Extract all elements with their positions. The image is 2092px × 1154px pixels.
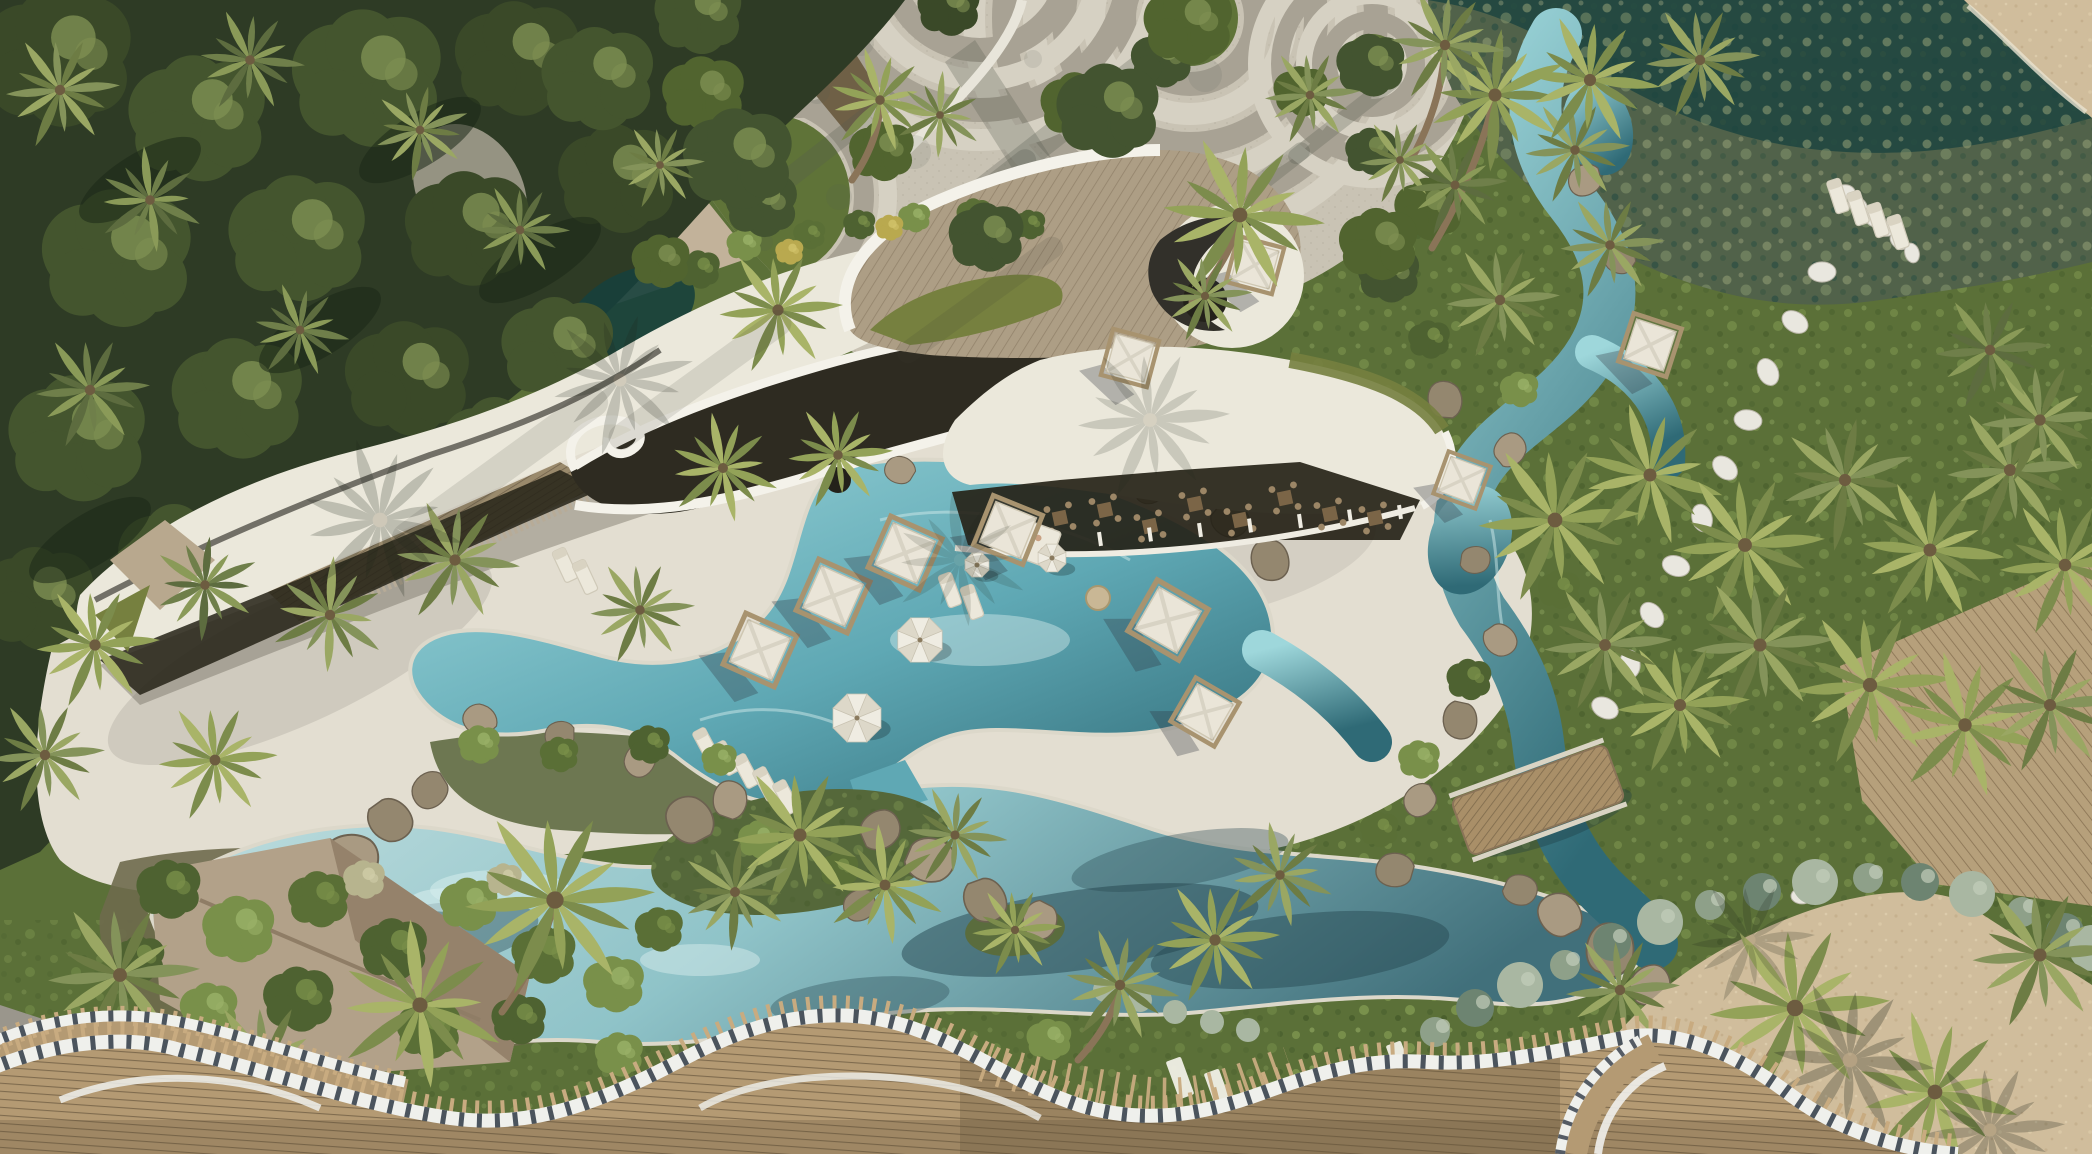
hedge-bush [1637,899,1683,945]
hedge-bush [1949,871,1995,917]
umbrella-pole [918,638,923,643]
resort-aerial-screenshot: Aerial rendering of a tropical resort wi… [0,0,2092,1154]
umbrella-pole [1050,556,1055,561]
hedge-highlight [1476,995,1490,1009]
hedge-bush [1792,859,1838,905]
hedge-highlight [1763,879,1777,893]
pouf [1086,586,1110,610]
hedge-bush [1456,989,1494,1027]
flowering-hedge [1200,1010,1224,1034]
hedge-highlight [1566,952,1580,966]
stepping-stone [1808,262,1836,282]
hedge-highlight [1613,929,1627,943]
shadow-dapple [1024,50,1042,68]
hedge-highlight [1973,881,1987,895]
hedge-highlight [1661,909,1675,923]
hedge-highlight [1869,865,1883,879]
hedge-bush [1593,923,1631,961]
shadow-dapple [826,184,852,210]
rock [1460,546,1490,573]
hedge-bush [1901,863,1939,901]
hedge-bush [1497,962,1543,1008]
hedge-highlight [1521,972,1535,986]
flowering-hedge [1236,1018,1260,1042]
canopy-base-shade [0,1120,1970,1154]
resort-aerial-render: Aerial rendering of a tropical resort wi… [0,0,2092,1154]
umbrella-pole [855,716,860,721]
hedge-highlight [1921,869,1935,883]
flowering-hedge [1163,1000,1187,1024]
hedge-highlight [1436,1019,1450,1033]
hedge-highlight [1816,869,1830,883]
